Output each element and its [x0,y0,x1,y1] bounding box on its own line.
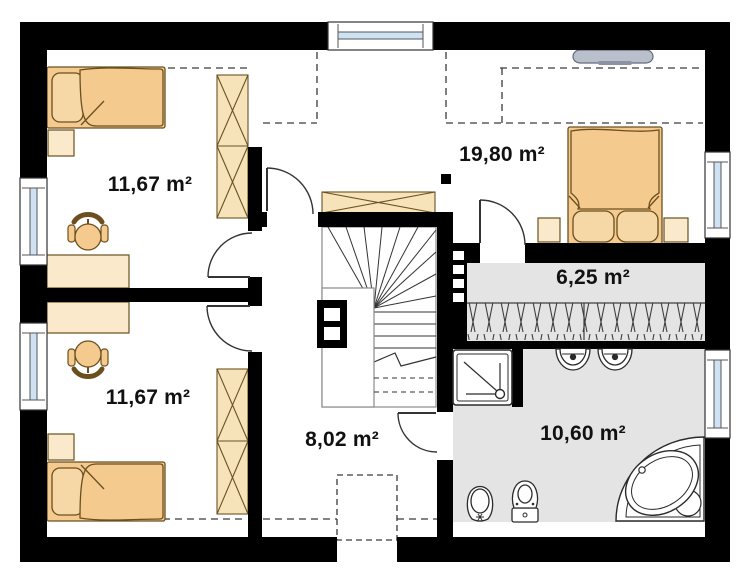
window-icon [705,152,730,238]
shower-icon [453,350,512,405]
wall-stair-east [437,460,453,537]
wall-closet-north [525,243,705,263]
nightstand-icon [48,130,74,156]
wall-right-segment [705,238,730,350]
nightstand-icon [664,218,688,242]
wall-bottom-left-segment [20,537,337,562]
wardrobe-icon [217,369,248,514]
room-area-label: 6,25 m² [556,266,630,290]
window-icon [20,178,47,265]
wall-stair-top [318,212,453,227]
clothes-rail-hatch [467,303,705,340]
door-arc-icon [267,168,313,214]
window-icon [20,323,47,410]
wall-right-segment [705,22,730,152]
room-area-label: 10,60 m² [540,422,626,446]
wall-interior [248,277,262,306]
chair-icon [68,215,108,251]
wall-interior [248,147,262,231]
floor-plan-svg [0,0,751,583]
window-icon [328,22,433,50]
door-arc-icon [208,233,252,277]
single-bed-icon [47,67,165,128]
desk-icon [47,255,129,288]
column-marker [441,174,451,184]
wall-room-divider [20,288,262,302]
wardrobe-icon [217,75,248,218]
nightstand-icon [48,434,74,460]
wall-left-segment [20,22,47,178]
skylight-dashed-outline [337,475,397,540]
chair-icon [68,341,108,377]
wall-left-segment [20,410,47,562]
bidet-icon [467,487,492,522]
door-arc-icon [480,200,525,245]
wall-top-right-segment [433,22,730,50]
wall-stub [260,212,267,227]
room-area-label: 8,02 m² [305,428,379,452]
door-arc-icon [207,306,252,351]
door-arc-icon [398,413,437,452]
desk-icon [47,302,129,333]
wall-top-left-segment [20,22,328,50]
single-bed-icon [47,462,165,521]
floor-plan: 11,67 m² 11,67 m² 19,80 m² 6,25 m² 8,02 … [0,0,751,583]
toilet-icon [512,481,538,522]
wall-interior [248,352,262,537]
wall-right-segment [705,438,730,562]
tv-icon [573,50,653,65]
wall-bottom-right-segment [397,537,730,562]
chimney-icon [317,300,347,348]
window-icon [705,350,730,438]
wardrobe-icon [322,192,435,213]
wall-bathroom-north [453,341,705,349]
room-area-label: 11,67 m² [106,386,191,410]
room-area-label: 11,67 m² [108,173,193,197]
room-area-label: 19,80 m² [459,143,545,167]
nightstand-icon [538,218,560,242]
wall-shower [512,349,523,407]
double-bed-icon [568,127,662,245]
